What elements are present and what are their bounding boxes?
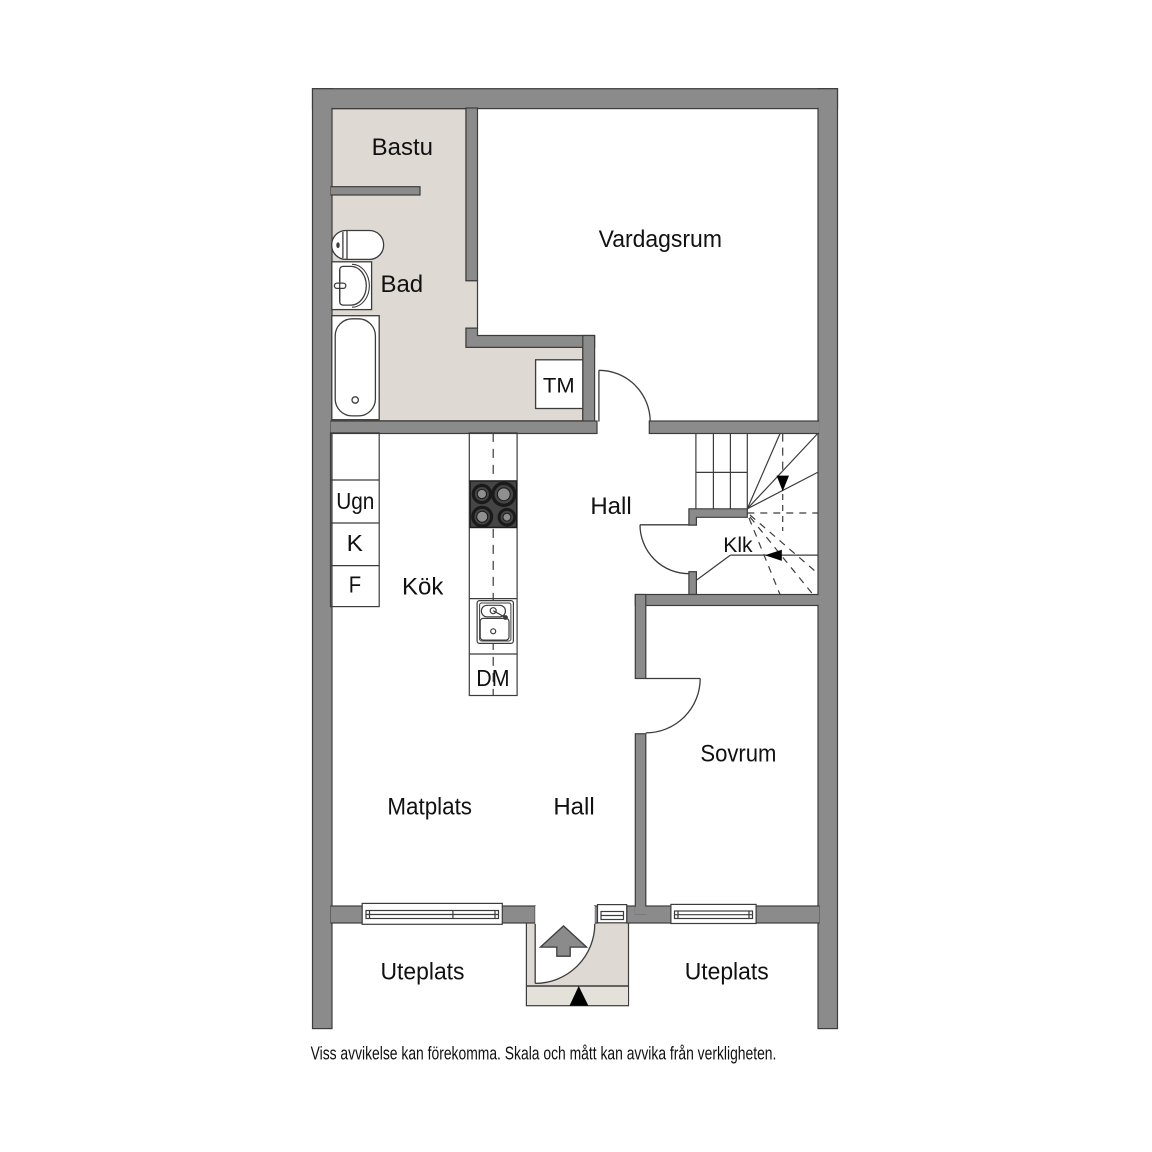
- svg-text:TM: TM: [543, 373, 575, 397]
- svg-text:Uteplats: Uteplats: [685, 959, 769, 986]
- svg-text:K: K: [347, 530, 364, 556]
- svg-text:Bastu: Bastu: [372, 134, 433, 161]
- svg-text:Ugn: Ugn: [336, 488, 374, 514]
- svg-text:Bad: Bad: [380, 271, 423, 298]
- svg-text:Kök: Kök: [402, 574, 444, 601]
- svg-text:Uteplats: Uteplats: [381, 959, 465, 986]
- svg-text:Matplats: Matplats: [387, 794, 472, 821]
- svg-text:Vardagsrum: Vardagsrum: [599, 226, 722, 253]
- svg-text:Viss avvikelse kan förekomma.: Viss avvikelse kan förekomma. Skala och …: [311, 1043, 777, 1064]
- svg-text:Hall: Hall: [553, 794, 594, 821]
- svg-text:Hall: Hall: [590, 493, 631, 520]
- svg-text:DM: DM: [476, 665, 509, 691]
- svg-text:Sovrum: Sovrum: [700, 741, 776, 768]
- svg-text:F: F: [349, 571, 361, 597]
- svg-text:Klk: Klk: [723, 533, 753, 557]
